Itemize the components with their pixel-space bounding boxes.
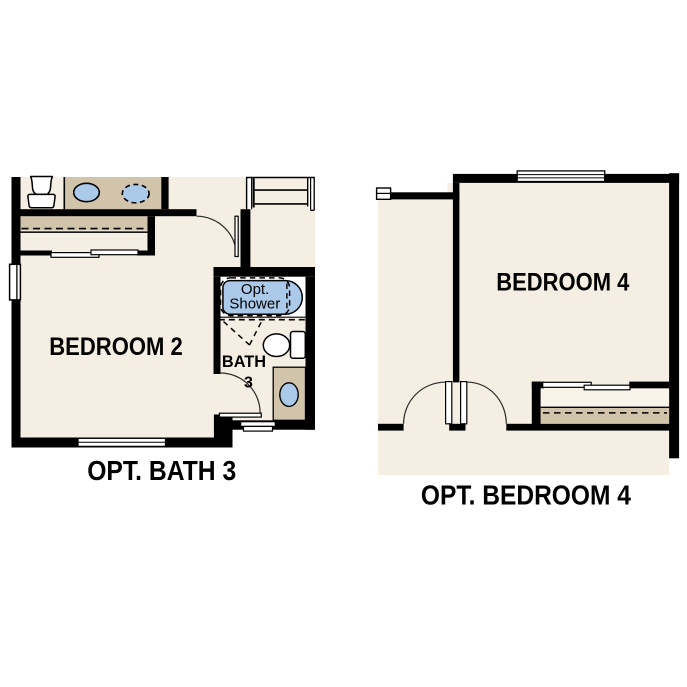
svg-text:OPT. BATH 3: OPT. BATH 3 <box>87 455 236 486</box>
svg-text:BATH: BATH <box>222 353 266 371</box>
svg-text:Shower: Shower <box>229 296 280 313</box>
svg-text:3: 3 <box>244 375 253 392</box>
svg-text:OPT. BEDROOM 4: OPT. BEDROOM 4 <box>421 480 631 511</box>
svg-text:BEDROOM 2: BEDROOM 2 <box>49 334 183 361</box>
svg-text:BEDROOM 4: BEDROOM 4 <box>496 269 629 297</box>
